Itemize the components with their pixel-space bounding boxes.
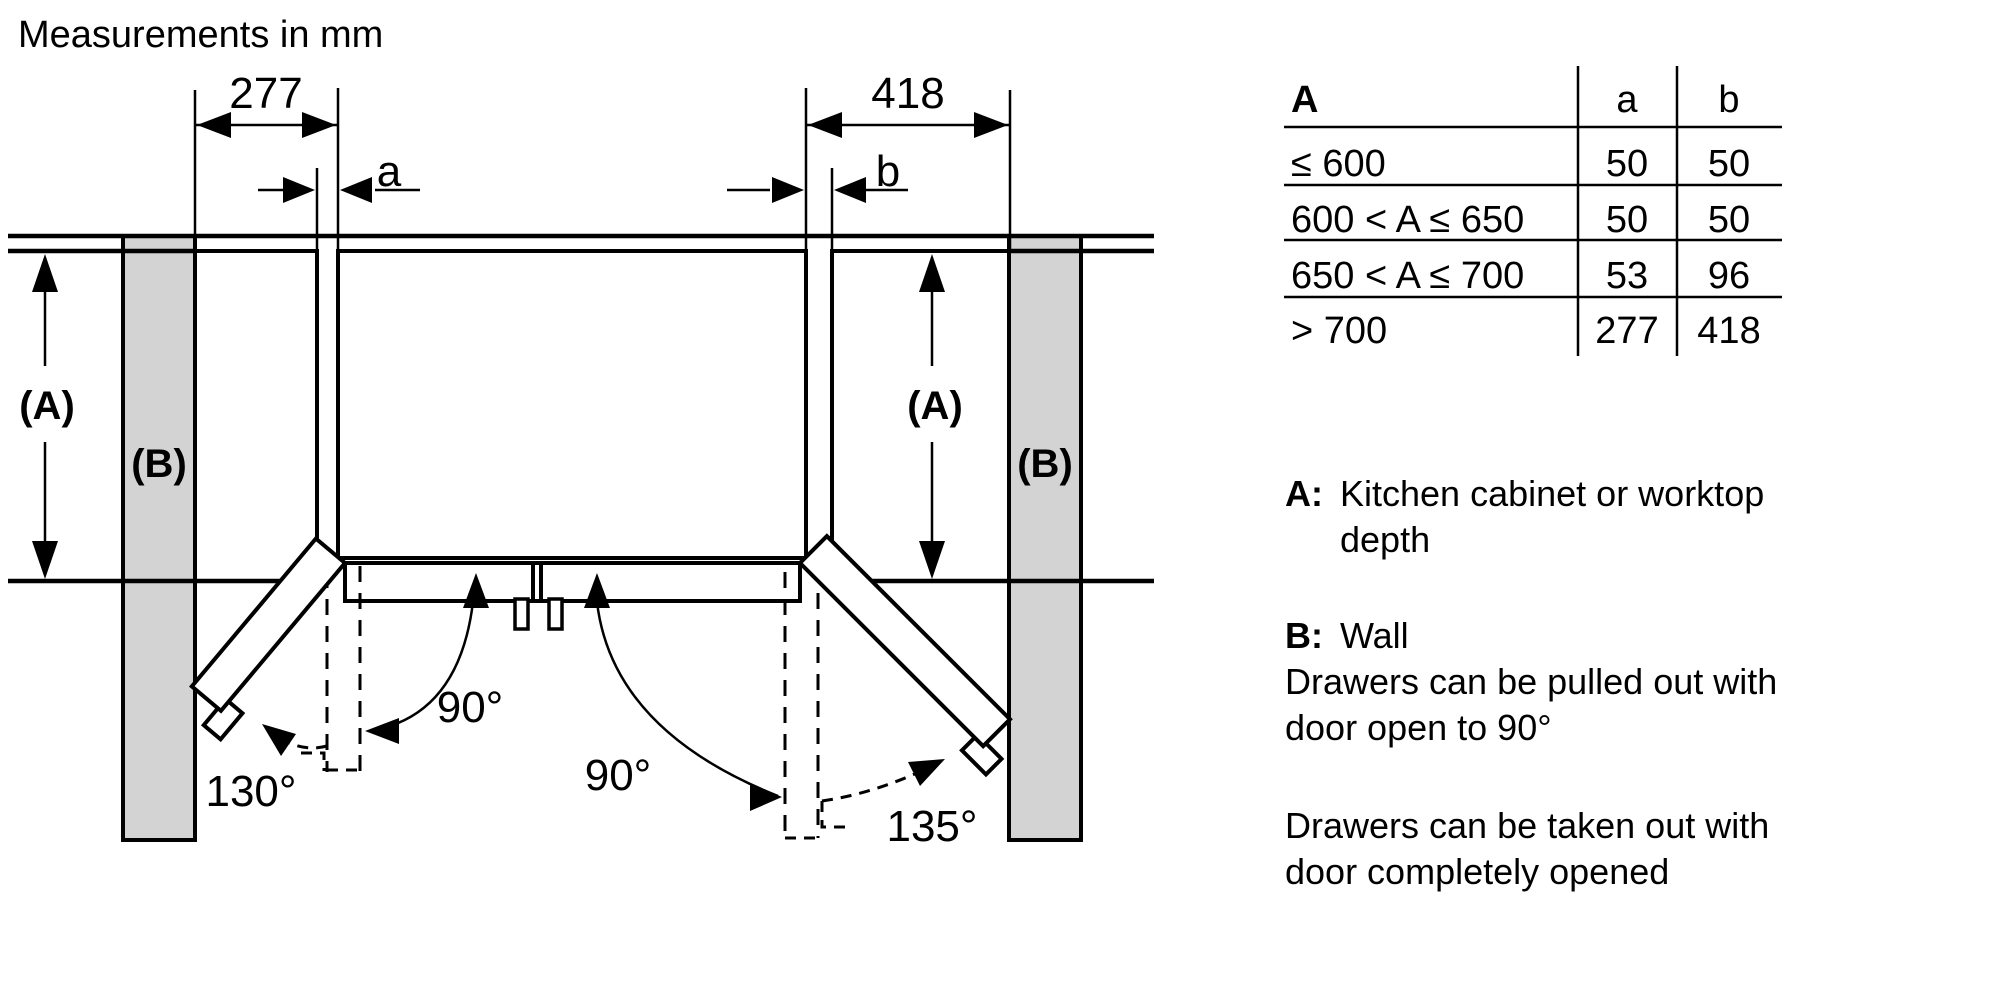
page-title: Measurements in mm (18, 14, 383, 56)
table-cell-a: 53 (1606, 255, 1648, 297)
table-row: 650 < A ≤ 700 53 96 (1291, 255, 1750, 297)
depth-label-right: (A) (907, 384, 963, 428)
door-90deg-position-right (785, 566, 848, 838)
swing-arc-left-130 (262, 724, 327, 756)
appliance-body (338, 251, 806, 558)
legend-key-a: A: (1285, 473, 1323, 514)
table-cell-a: 50 (1606, 143, 1648, 185)
table-cell-b: 418 (1697, 310, 1760, 352)
depth-dimension-left: (A) (19, 254, 75, 579)
swing-arc-right-135 (822, 759, 945, 801)
angle-90-right-label: 90° (585, 751, 652, 800)
hinge-pin-left (515, 599, 528, 629)
legend-key-b: B: (1285, 615, 1323, 656)
left-cabinet (195, 251, 317, 581)
dim-arrowhead-down (32, 541, 58, 579)
installation-diagram-page: 277 418 a b (A) (A) (B) (0, 0, 2000, 1000)
legend-note2-line2: door completely opened (1285, 851, 1669, 892)
table-cell-range: 600 < A ≤ 650 (1291, 199, 1524, 241)
table-cell-range: ≤ 600 (1291, 143, 1386, 185)
diagram-svg: 277 418 a b (A) (A) (B) (0, 0, 2000, 1000)
legend-text-a-line1: Kitchen cabinet or worktop (1340, 473, 1764, 514)
right-angle-mark-left (301, 753, 324, 771)
dim-arrowhead (772, 177, 804, 203)
right-wall (1009, 236, 1081, 840)
legend-note2-line1: Drawers can be taken out with (1285, 805, 1769, 846)
legend: A: Kitchen cabinet or worktop depth B: W… (1285, 473, 1777, 892)
table-cell-b: 50 (1708, 143, 1750, 185)
wall-label-left: (B) (131, 442, 187, 486)
closed-door-band (345, 563, 800, 601)
right-angle-mark-right (822, 801, 848, 827)
table-header-a: a (1616, 79, 1638, 121)
table-cell-b: 50 (1708, 199, 1750, 241)
gap-a-label: a (377, 147, 402, 196)
table-row: > 700 277 418 (1291, 310, 1761, 352)
depth-label-left: (A) (19, 384, 75, 428)
dim-arrowhead (834, 177, 866, 203)
legend-text-a-line2: depth (1340, 519, 1430, 560)
table-row: ≤ 600 50 50 (1291, 143, 1750, 185)
arc-arrowhead-left (365, 718, 399, 744)
table-header-range: A (1291, 79, 1318, 121)
clearance-table: A a b ≤ 600 50 50 600 < A ≤ 650 50 50 65… (1284, 66, 1782, 356)
arc-arrowhead (908, 759, 945, 786)
arc-arrowhead (262, 724, 296, 756)
angle-90-left-label: 90° (437, 683, 504, 732)
legend-note1-line1: Drawers can be pulled out with (1285, 661, 1777, 702)
dimension-b: b (727, 147, 908, 203)
dim-418-label: 418 (871, 69, 944, 118)
dim-arrowhead (808, 112, 842, 138)
table-cell-range: 650 < A ≤ 700 (1291, 255, 1524, 297)
gap-b-label: b (876, 147, 900, 196)
dimension-277: 277 (195, 69, 338, 138)
wall-label-right: (B) (1017, 442, 1073, 486)
table-row: 600 < A ≤ 650 50 50 (1291, 199, 1750, 241)
table-cell-a: 277 (1595, 310, 1658, 352)
dim-arrowhead (302, 112, 336, 138)
dim-arrowhead (283, 177, 315, 203)
arc-arrowhead-right (750, 783, 782, 811)
legend-text-b: Wall (1340, 615, 1409, 656)
angle-130-label: 130° (205, 767, 296, 816)
dimension-418: 418 (806, 69, 1010, 138)
dim-arrowhead-up (32, 254, 58, 292)
dim-arrowhead (974, 112, 1008, 138)
angle-135-label: 135° (886, 802, 977, 851)
legend-note1-line2: door open to 90° (1285, 707, 1552, 748)
table-cell-range: > 700 (1291, 310, 1387, 352)
dim-277-label: 277 (229, 69, 302, 118)
table-header-b: b (1718, 79, 1739, 121)
dim-arrowhead (197, 112, 231, 138)
hinge-pin-right (549, 599, 562, 629)
closed-doors-band (345, 563, 800, 629)
dim-arrowhead (340, 177, 372, 203)
table-cell-b: 96 (1708, 255, 1750, 297)
left-wall (123, 236, 195, 840)
table-cell-a: 50 (1606, 199, 1648, 241)
